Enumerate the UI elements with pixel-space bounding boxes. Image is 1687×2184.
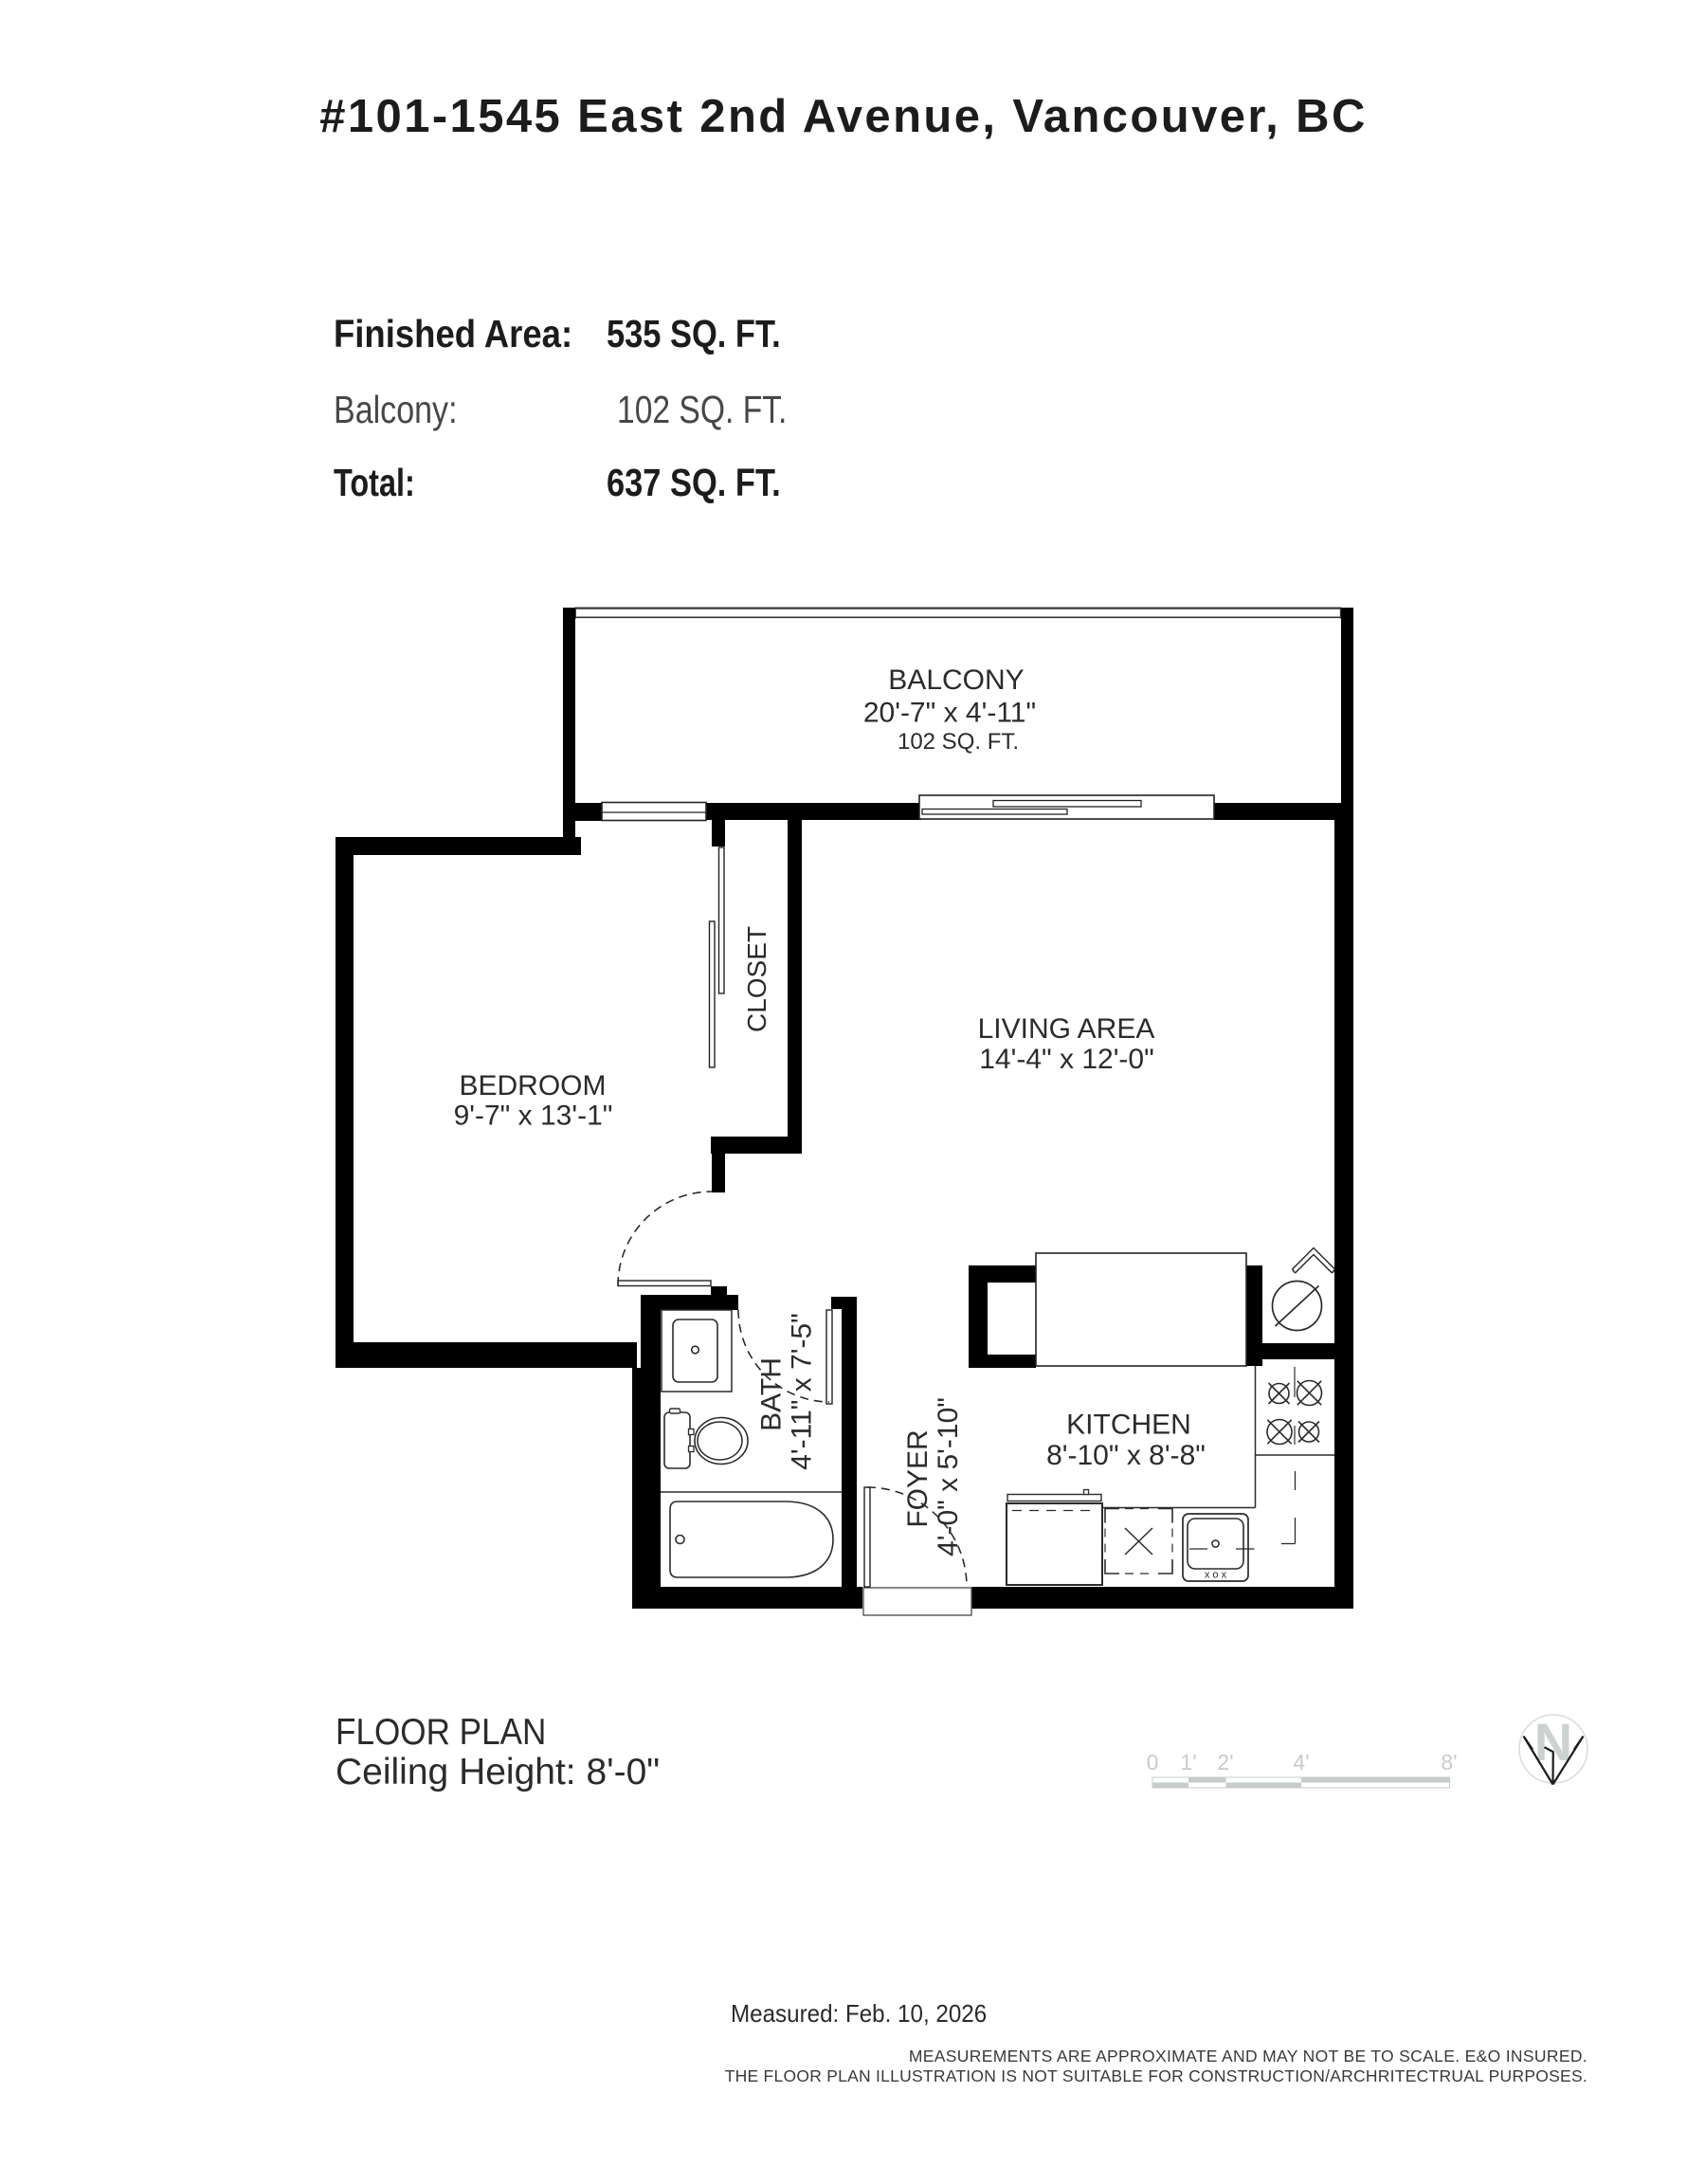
svg-text:FOYER: FOYER (902, 1429, 934, 1527)
svg-text:2': 2' (1217, 1750, 1233, 1774)
svg-text:9'-7" x 13'-1": 9'-7" x 13'-1" (454, 1101, 613, 1132)
svg-text:CLOSET: CLOSET (742, 926, 771, 1032)
svg-text:1': 1' (1180, 1750, 1196, 1774)
svg-text:LIVING AREA: LIVING AREA (978, 1013, 1155, 1045)
svg-text:14'-4" x 12'-0": 14'-4" x 12'-0" (979, 1044, 1154, 1075)
svg-text:x o x: x o x (1205, 1570, 1227, 1581)
svg-text:KITCHEN: KITCHEN (1066, 1410, 1191, 1441)
svg-text:8'-10" x 8'-8": 8'-10" x 8'-8" (1046, 1440, 1206, 1471)
svg-text:4'-0" x 5'-10": 4'-0" x 5'-10" (933, 1397, 964, 1556)
svg-text:4'-11" x 7'-5": 4'-11" x 7'-5" (787, 1313, 818, 1470)
svg-text:BEDROOM: BEDROOM (459, 1070, 606, 1101)
svg-text:BATH: BATH (756, 1357, 788, 1431)
svg-text:8': 8' (1441, 1750, 1457, 1774)
svg-text:4': 4' (1293, 1750, 1309, 1774)
svg-text:0: 0 (1147, 1750, 1159, 1774)
svg-text:BALCONY: BALCONY (888, 664, 1024, 696)
svg-text:20'-7" x 4'-11": 20'-7" x 4'-11" (863, 698, 1036, 729)
svg-text:102 SQ. FT.: 102 SQ. FT. (898, 729, 1019, 755)
